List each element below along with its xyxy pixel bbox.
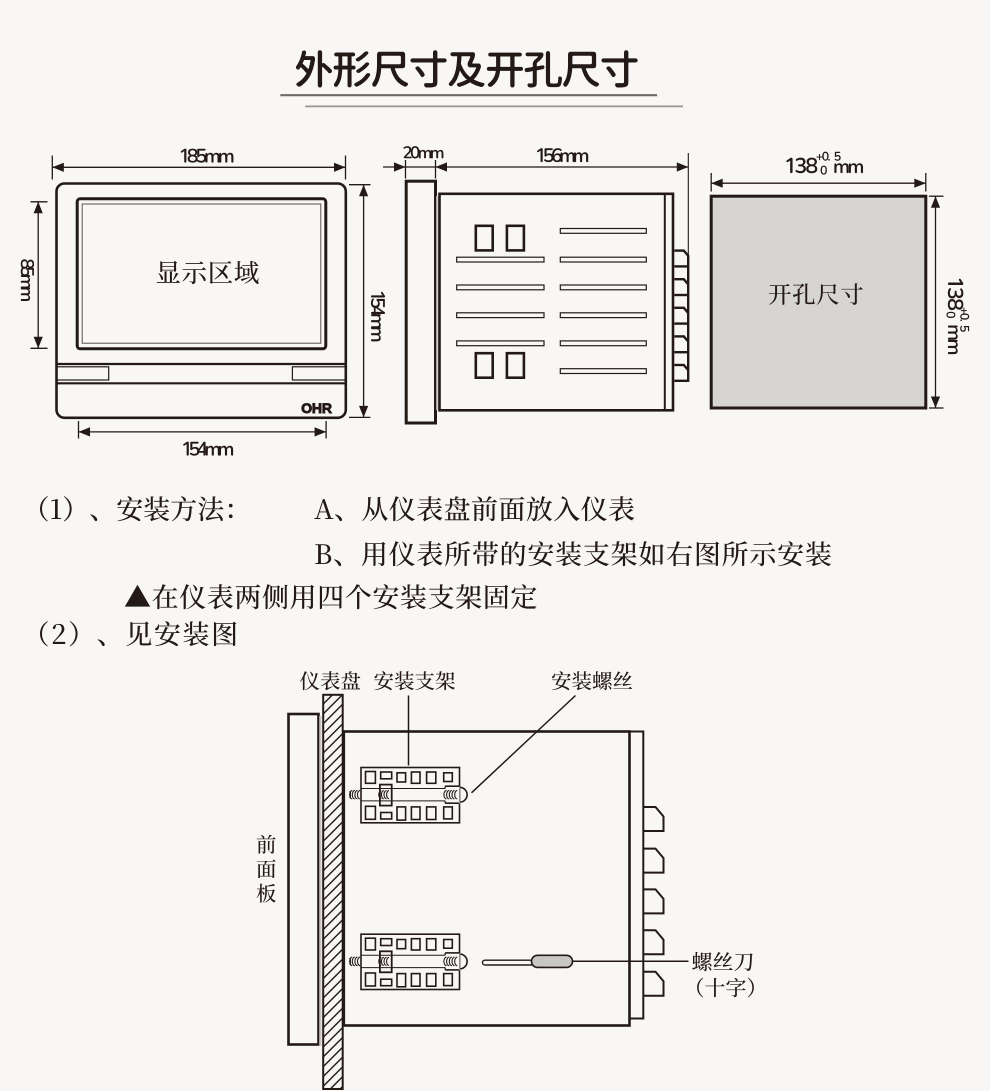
svg-text:OHR: OHR	[301, 400, 332, 416]
